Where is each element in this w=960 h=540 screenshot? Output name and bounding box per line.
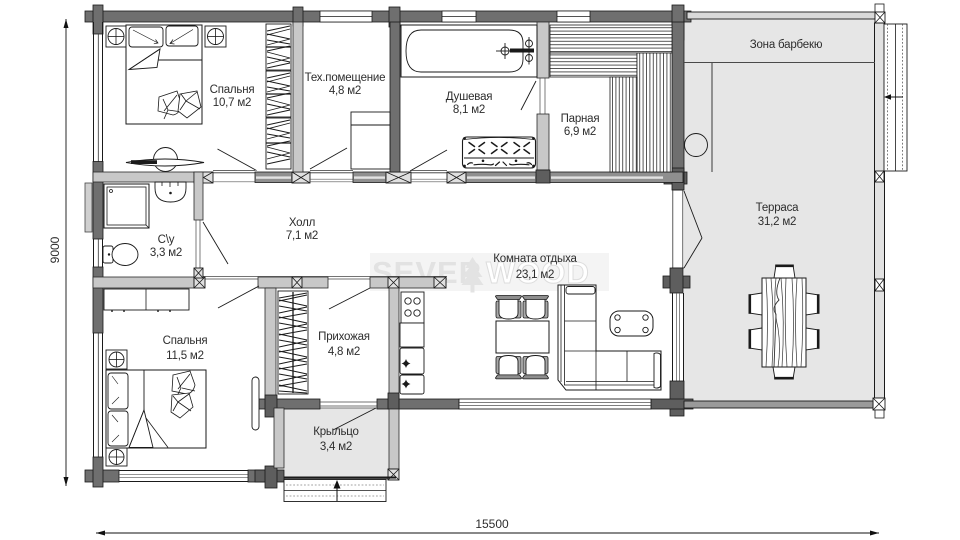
- svg-text:Терраса: Терраса: [756, 202, 800, 214]
- svg-text:8,1 м2: 8,1 м2: [453, 104, 485, 116]
- svg-text:Спальня: Спальня: [163, 335, 208, 347]
- svg-text:4,8 м2: 4,8 м2: [328, 346, 360, 358]
- svg-text:11,5 м2: 11,5 м2: [166, 350, 204, 362]
- svg-text:Холл: Холл: [289, 217, 315, 229]
- svg-text:15500: 15500: [475, 517, 509, 531]
- svg-text:Комната отдыха: Комната отдыха: [493, 253, 577, 265]
- svg-text:31,2 м2: 31,2 м2: [758, 216, 796, 228]
- svg-text:10,7 м2: 10,7 м2: [213, 97, 251, 109]
- svg-text:3,4 м2: 3,4 м2: [320, 441, 352, 453]
- svg-text:Зона барбекю: Зона барбекю: [750, 39, 823, 51]
- svg-text:4,8 м2: 4,8 м2: [329, 85, 361, 97]
- svg-text:6,9 м2: 6,9 м2: [564, 126, 596, 138]
- svg-text:С\у: С\у: [158, 234, 175, 246]
- svg-text:Прихожая: Прихожая: [318, 331, 370, 343]
- svg-text:Крыльцо: Крыльцо: [313, 426, 359, 438]
- svg-text:9000: 9000: [48, 236, 62, 263]
- svg-text:Спальня: Спальня: [210, 84, 255, 96]
- svg-text:Душевая: Душевая: [446, 91, 493, 103]
- svg-text:3,3 м2: 3,3 м2: [150, 247, 182, 259]
- svg-text:23,1 м2: 23,1 м2: [516, 269, 554, 281]
- svg-text:7,1 м2: 7,1 м2: [286, 230, 318, 242]
- svg-text:Тех.помещение: Тех.помещение: [305, 72, 386, 84]
- svg-text:Парная: Парная: [561, 113, 600, 125]
